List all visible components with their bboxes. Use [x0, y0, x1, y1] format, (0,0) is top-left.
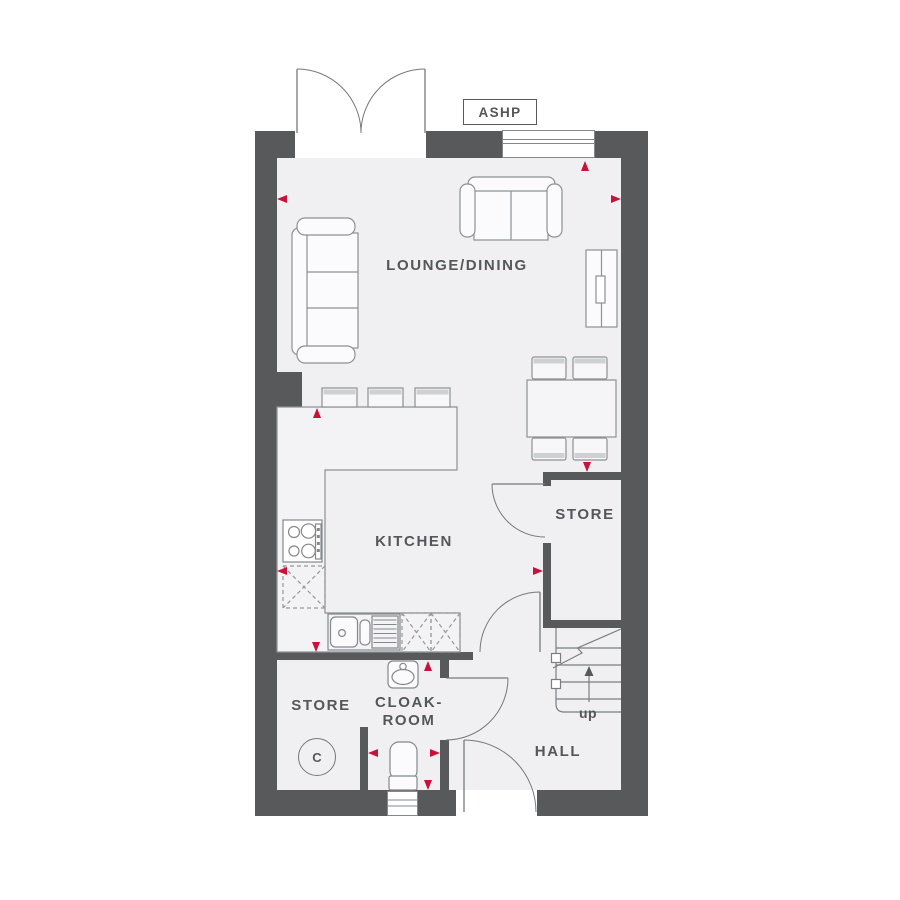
ashp-label: ASHP — [478, 105, 521, 120]
dimension-arrow-icon — [533, 567, 543, 575]
dimension-arrow-icon — [312, 642, 320, 652]
tv-unit-icon — [586, 250, 617, 327]
dimension-arrow-icon — [583, 462, 591, 472]
room-label-store-upper: STORE — [555, 506, 614, 524]
stairs-icon — [552, 628, 622, 712]
room-label-hall: HALL — [535, 743, 581, 761]
door-swing-cloakroom — [446, 678, 508, 740]
cloakroom-line2: ROOM — [382, 712, 435, 729]
door-swing-kitchen — [480, 592, 540, 652]
window-glazing — [387, 800, 418, 806]
window-glazing — [502, 140, 595, 144]
dimension-arrow-icon — [424, 780, 432, 790]
dimension-arrow-icon — [277, 195, 287, 203]
stairs-up-label: up — [579, 704, 597, 722]
heat-pump-unit-icon: ASHP — [463, 99, 537, 125]
sofa-3-seat-icon — [292, 218, 358, 363]
dimension-arrow-icon — [611, 195, 621, 203]
toilet-icon — [389, 742, 417, 790]
door-swing-store — [492, 484, 545, 537]
dimension-arrow-icon — [430, 749, 440, 757]
cylinder-marker-icon: C — [298, 738, 336, 776]
washbasin-icon — [388, 661, 418, 688]
cylinder-marker-letter: C — [312, 750, 321, 765]
dining-table-icon — [527, 380, 616, 437]
hob-icon — [283, 520, 322, 562]
dining-set — [527, 357, 616, 460]
french-doors-icon — [297, 69, 425, 133]
room-label-kitchen: KITCHEN — [375, 533, 453, 551]
room-label-lounge-dining: LOUNGE/DINING — [386, 257, 528, 275]
plan-linework — [0, 0, 900, 900]
room-label-store-lower: STORE — [291, 697, 350, 715]
room-label-cloakroom: CLOAK- ROOM — [375, 694, 443, 730]
floorplan-canvas: ASHP LOUNGE/DINING KITCHEN STORE STORE C… — [0, 0, 900, 900]
sofa-2-seat-icon — [460, 177, 562, 240]
dimension-arrow-icon — [368, 749, 378, 757]
dimension-arrow-icon — [581, 161, 589, 171]
dimension-arrow-icon — [424, 661, 432, 671]
front-door-icon — [464, 740, 536, 812]
bar-stool-icon — [322, 388, 450, 407]
dimension-arrow-icon — [313, 408, 321, 418]
dimension-arrow-icon — [277, 567, 287, 575]
cloakroom-line1: CLOAK- — [375, 694, 443, 711]
